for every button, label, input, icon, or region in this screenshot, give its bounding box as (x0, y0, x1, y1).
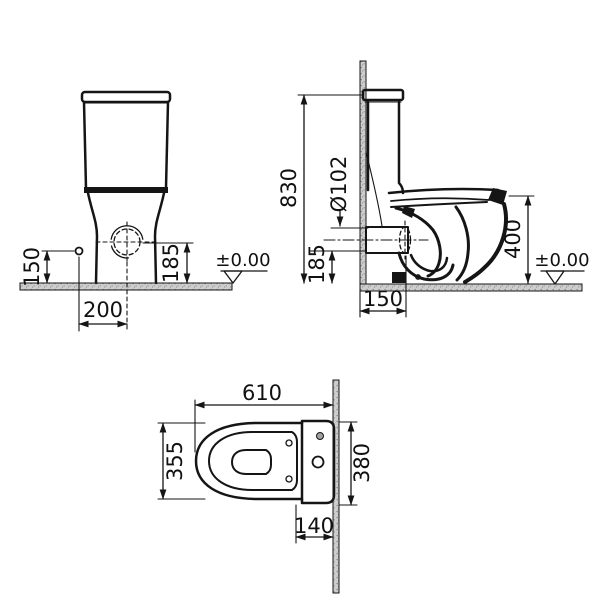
plan-dim-140-label: 140 (294, 514, 334, 538)
front-dim-185-label: 185 (159, 243, 183, 283)
plan-water-hole (232, 450, 271, 474)
plan-seat-bolt-bottom (286, 476, 292, 482)
plan-dim-355-label: 355 (163, 441, 187, 481)
plan-dim-610-label: 610 (242, 381, 282, 405)
side-dim-185: 185 (305, 244, 366, 284)
front-tank-band (84, 187, 168, 193)
front-dim-150: 150 (20, 247, 74, 287)
front-dim-200: 200 (79, 257, 127, 331)
plan-flush-button (313, 457, 324, 468)
plan-view: 610 355 380 140 (158, 380, 374, 593)
front-dim-185: 185 (143, 243, 193, 283)
front-dim-150-label: 150 (20, 247, 44, 287)
fixing-block (392, 272, 406, 283)
front-floor-slab (20, 283, 232, 290)
side-dim-400-label: 400 (501, 219, 525, 259)
seat-top-line (389, 189, 498, 193)
plan-seat-ring (209, 432, 297, 490)
front-datum-symbol: ±0.00 (215, 250, 270, 283)
front-cistern-left (84, 102, 86, 188)
plan-dim-380: 380 (339, 422, 374, 505)
side-view: 830 Ø102 185 400 150 ±0.00 (277, 61, 590, 317)
rim-underside-line (391, 202, 487, 207)
plan-seat-bolt-top (286, 440, 292, 446)
plan-supply-hole (317, 433, 324, 440)
front-datum-label: ±0.00 (215, 250, 270, 271)
front-cistern-right (166, 102, 168, 188)
plan-dim-610: 610 (195, 381, 333, 452)
seat-bottom-line (391, 198, 489, 201)
drain-center-symbol (96, 222, 158, 262)
bowl-outer-right (465, 204, 506, 282)
plan-dim-140: 140 (294, 505, 334, 543)
side-dim-150-label: 150 (363, 287, 403, 311)
plan-dim-355: 355 (158, 423, 205, 499)
technical-drawing-sheet: 150 185 200 ±0.00 (0, 0, 600, 600)
side-cistern-lid (363, 90, 403, 100)
bowl-inner-right (456, 207, 468, 280)
front-fixing-hole (76, 248, 83, 255)
side-dim-830-label: 830 (277, 168, 301, 208)
side-datum-symbol: ±0.00 (534, 250, 589, 284)
front-dim-200-label: 200 (83, 298, 123, 322)
plan-bowl-outline (196, 423, 302, 499)
front-cistern-lid (82, 92, 170, 102)
front-view: 150 185 200 ±0.00 (20, 92, 271, 331)
side-dim-185-label: 185 (305, 244, 329, 284)
side-datum-label: ±0.00 (534, 250, 589, 271)
toilet-dimension-drawing: 150 185 200 ±0.00 (0, 0, 600, 600)
side-dim-150: 150 (360, 256, 406, 317)
side-cistern-front (399, 102, 403, 193)
plan-dim-380-label: 380 (350, 443, 374, 483)
side-dim-o102-label: Ø102 (327, 156, 351, 213)
front-pedestal-left (88, 193, 97, 283)
